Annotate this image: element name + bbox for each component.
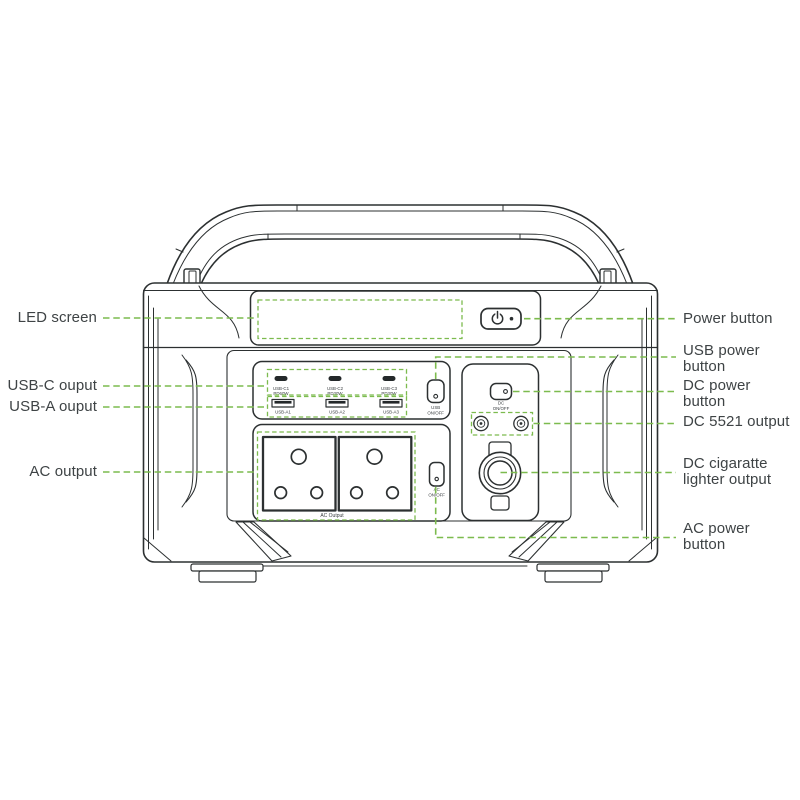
callout-text: USB-C ouput [0, 378, 97, 394]
carry-handle [167, 205, 633, 285]
callout-usb-a-output: USB-A ouput [0, 399, 97, 415]
callout-text: lighter output [683, 472, 800, 488]
callout-usb-c-output: USB-C ouput [0, 378, 97, 394]
callout-text: button [683, 537, 800, 553]
top-strip [251, 291, 541, 345]
dc-button-label-1: DC [498, 401, 504, 406]
callout-dc-cigarette-lighter-output: DC cigaratte lighter output [683, 456, 800, 487]
usb-c-port-1 [275, 376, 288, 381]
foot-left [191, 564, 263, 582]
callout-text: button [683, 359, 800, 375]
callout-text: button [683, 394, 800, 410]
callout-text: LED screen [0, 310, 97, 326]
callout-text: AC output [0, 464, 97, 480]
ac-panel [253, 425, 450, 522]
ac-output-label: AC Output [320, 513, 344, 519]
usb-a2-label: USB-A2 [329, 410, 345, 415]
callout-text: DC power [683, 378, 800, 394]
dc-panel [462, 364, 539, 521]
product-diagram: USB-C1 PD60W USB-C2 PD30W USB-C3 PD30W U… [0, 0, 800, 800]
callout-power-button: Power button [683, 311, 800, 327]
usb-button-label-1: USB [431, 405, 440, 410]
usb-c-port-2 [329, 376, 342, 381]
callout-ac-power-button: AC power button [683, 521, 800, 552]
device-illustration: USB-C1 PD60W USB-C2 PD30W USB-C3 PD30W U… [0, 0, 800, 800]
callout-text: Power button [683, 311, 800, 327]
ac-button-label-2: ON/OFF [428, 493, 445, 498]
callout-dc-5521-output: DC 5521 output [683, 414, 800, 430]
callout-text: DC 5521 output [683, 414, 800, 430]
callout-ac-output: AC output [0, 464, 97, 480]
ac-button-label-1: AC [434, 487, 440, 492]
callout-text: DC cigaratte [683, 456, 800, 472]
dc-button-label-2: ON/OFF [493, 406, 510, 411]
callout-usb-power-button: USB power button [683, 343, 800, 374]
callout-dc-power-button: DC power button [683, 378, 800, 409]
usb-c-port-3 [383, 376, 396, 381]
callout-led-screen: LED screen [0, 310, 97, 326]
usb-button-label-2: ON/OFF [427, 411, 444, 416]
foot-right [537, 564, 609, 582]
callout-text: USB power [683, 343, 800, 359]
callout-text: USB-A ouput [0, 399, 97, 415]
usb-a3-label: USB-A3 [383, 410, 399, 415]
usb-a1-label: USB-A1 [275, 410, 291, 415]
callout-text: AC power [683, 521, 800, 537]
power-led-dot [510, 317, 514, 321]
